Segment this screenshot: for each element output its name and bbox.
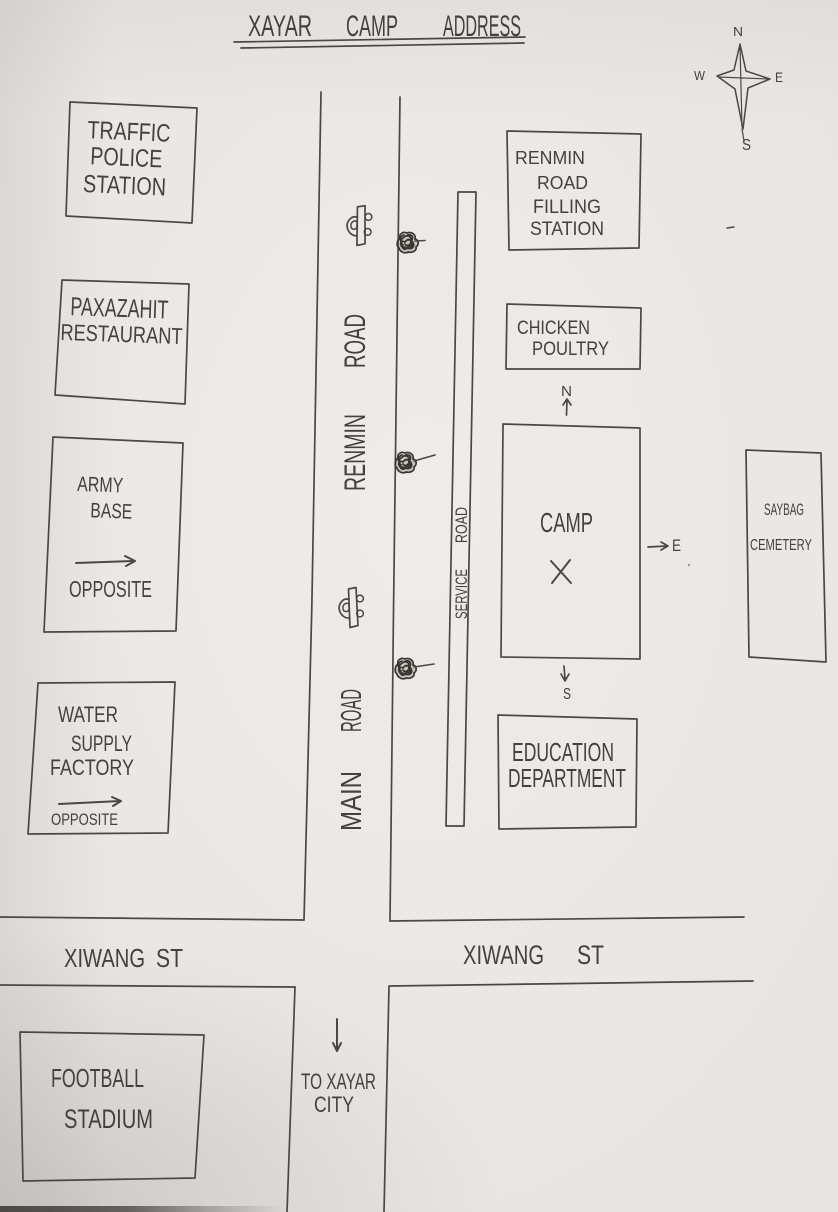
svg-text:E: E [775,69,783,85]
svg-text:CAMP: CAMP [540,507,593,538]
svg-text:CEMETERY: CEMETERY [750,537,812,554]
svg-text:POULTRY: POULTRY [532,339,609,360]
svg-text:W: W [694,68,706,83]
svg-text:FOOTBALL: FOOTBALL [51,1063,144,1093]
svg-text:OPPOSITE: OPPOSITE [51,810,118,829]
svg-text:POLICE: POLICE [90,142,163,173]
svg-text:TO XAYAR: TO XAYAR [301,1069,376,1094]
svg-text:S: S [742,137,751,154]
svg-text:ROAD: ROAD [339,314,372,368]
svg-text:OPPOSITE: OPPOSITE [69,576,152,602]
svg-text:ST: ST [156,943,183,973]
svg-text:STATION: STATION [83,170,167,202]
svg-text:ARMY: ARMY [77,473,124,498]
svg-text:CAMP: CAMP [346,10,398,43]
svg-text:RESTAURANT: RESTAURANT [60,319,183,349]
svg-text:XIWANG: XIWANG [64,943,145,973]
svg-text:STADIUM: STADIUM [64,1104,153,1134]
svg-text:SERVICE: SERVICE [452,569,471,619]
svg-text:XAYAR: XAYAR [248,10,312,43]
svg-text:RENMIN: RENMIN [339,414,372,491]
svg-text:BASE: BASE [90,499,133,523]
svg-text:FACTORY: FACTORY [50,755,134,780]
svg-text:FILLING: FILLING [533,197,601,218]
svg-text:MAIN: MAIN [336,771,368,831]
svg-text:CHICKEN: CHICKEN [517,318,590,339]
svg-text:XIWANG: XIWANG [463,940,544,970]
svg-text:SAYBAG: SAYBAG [764,500,804,519]
svg-text:N: N [733,24,743,39]
svg-text:WATER: WATER [58,702,118,727]
svg-text:CITY: CITY [314,1092,354,1117]
svg-text:STATION: STATION [530,219,604,240]
svg-text:S: S [563,686,571,703]
svg-text:N: N [561,383,572,400]
svg-text:SUPPLY: SUPPLY [71,731,132,756]
svg-text:ST: ST [577,940,604,970]
svg-text:ROAD: ROAD [537,173,588,193]
svg-text:RENMIN: RENMIN [515,148,585,168]
svg-text:ROAD: ROAD [452,507,471,543]
svg-text:DEPARTMENT: DEPARTMENT [508,763,626,793]
svg-text:ROAD: ROAD [336,689,368,732]
svg-text:E: E [672,536,681,555]
